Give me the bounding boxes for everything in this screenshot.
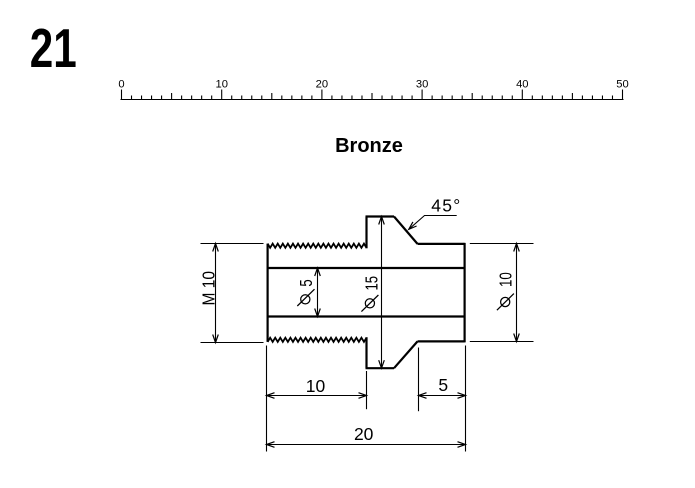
svg-text:10: 10	[495, 272, 515, 287]
svg-text:M 10: M 10	[199, 271, 219, 306]
svg-text:40: 40	[516, 79, 528, 91]
svg-text:5: 5	[296, 279, 316, 286]
svg-text:15: 15	[361, 276, 381, 291]
svg-text:0: 0	[118, 79, 124, 91]
svg-text:10: 10	[306, 376, 326, 396]
svg-text:50: 50	[616, 79, 628, 91]
svg-text:20: 20	[316, 79, 328, 91]
svg-text:Bronze: Bronze	[335, 135, 403, 157]
svg-text:5: 5	[438, 375, 448, 395]
svg-text:21: 21	[30, 17, 77, 79]
svg-text:45°: 45°	[431, 196, 460, 216]
svg-text:20: 20	[354, 424, 374, 444]
svg-text:30: 30	[416, 79, 428, 91]
svg-text:10: 10	[215, 79, 227, 91]
